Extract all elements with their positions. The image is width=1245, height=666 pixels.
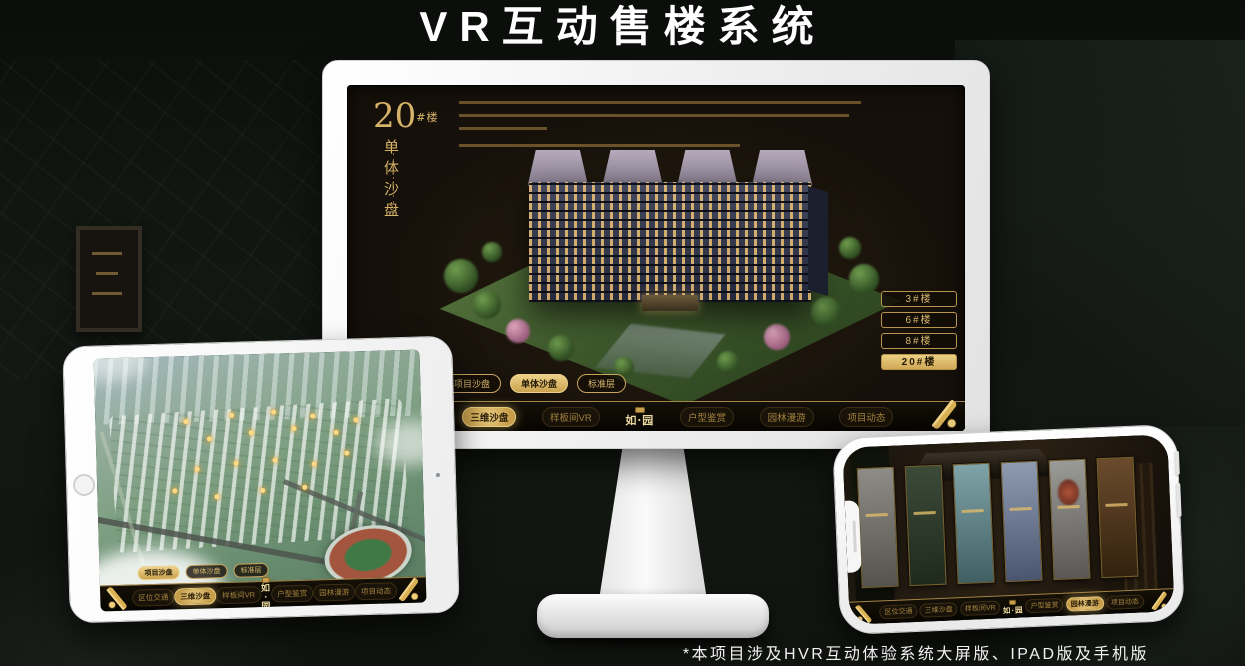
- building-marker[interactable]: [207, 436, 212, 441]
- tree-graphic: [811, 297, 841, 327]
- gallery-panel[interactable]: [904, 465, 946, 586]
- phone-frame: 区位交通 三维沙盘 样板间VR 如·园 户型鉴赏 园林漫游 项目动态: [832, 424, 1185, 635]
- brand-logo: 如·园: [625, 407, 654, 427]
- scroll-icon[interactable]: [1150, 591, 1170, 611]
- gallery-panels: [856, 457, 1138, 588]
- subtitle-decoration: [393, 141, 394, 215]
- gallery-panel[interactable]: [1048, 459, 1090, 580]
- nav-item-garden-tour[interactable]: 园林漫游: [313, 583, 355, 601]
- phone-device: 区位交通 三维沙盘 样板间VR 如·园 户型鉴赏 园林漫游 项目动态: [832, 424, 1185, 635]
- nav-item-showroom-vr[interactable]: 样板间VR: [542, 407, 600, 427]
- scroll-icon[interactable]: [930, 400, 960, 430]
- floor-button-3[interactable]: 3#楼: [881, 291, 957, 307]
- nav-item-location[interactable]: 区位交通: [132, 588, 174, 606]
- background-plaque: [76, 226, 142, 332]
- nav-item-3d-sandbox[interactable]: 三维沙盘: [919, 602, 958, 618]
- building-number-suffix: #楼: [416, 111, 438, 124]
- building-marker[interactable]: [344, 450, 349, 455]
- brand-logo-text: 如·园: [261, 584, 272, 611]
- scroll-icon[interactable]: [105, 586, 130, 611]
- building-marker[interactable]: [271, 409, 276, 414]
- nav-item-showroom-vr[interactable]: 样板间VR: [960, 600, 1001, 616]
- camera-icon: [436, 473, 440, 477]
- scroll-icon[interactable]: [397, 578, 422, 603]
- brand-logo: 如·园: [261, 577, 272, 611]
- tree-graphic: [764, 324, 790, 350]
- brand-seal-icon: [635, 407, 645, 414]
- monitor-stand-base: [537, 594, 769, 638]
- brand-logo-text: 如·园: [1003, 606, 1024, 614]
- building-label: 20#楼 单体沙盘: [373, 99, 438, 231]
- gallery-panel[interactable]: [856, 467, 898, 588]
- nav-item-floorplans[interactable]: 户型鉴赏: [680, 407, 734, 427]
- scroll-icon[interactable]: [854, 604, 874, 624]
- tree-graphic: [849, 264, 879, 294]
- monitor-stand-neck: [578, 444, 728, 600]
- tablet-screen: 项目沙盘 单体沙盘 标准层 区位交通 三维沙盘 样板间VR 如·园 户型鉴赏 园…: [94, 350, 427, 612]
- building-number: 20: [373, 96, 416, 136]
- page-title: VR互动售楼系统: [0, 0, 1245, 54]
- nav-item-garden-tour[interactable]: 园林漫游: [1065, 596, 1104, 612]
- tab-single-sandbox[interactable]: 单体沙盘: [510, 374, 568, 393]
- tablet-device: 项目沙盘 单体沙盘 标准层 区位交通 三维沙盘 样板间VR 如·园 户型鉴赏 园…: [62, 336, 460, 624]
- nav-item-showroom-vr[interactable]: 样板间VR: [216, 586, 261, 604]
- footnote: *本项目涉及HVR互动体验系统大屏版、IPAD版及手机版: [683, 640, 1149, 664]
- tree-graphic: [548, 335, 574, 361]
- nav-item-3d-sandbox[interactable]: 三维沙盘: [462, 407, 516, 427]
- background-photo-right: [955, 40, 1245, 470]
- nav-item-3d-sandbox[interactable]: 三维沙盘: [174, 587, 216, 605]
- view-tab-group: 项目沙盘 单体沙盘 标准层: [443, 374, 626, 393]
- building-side: [808, 187, 828, 296]
- building-render: [435, 139, 905, 411]
- tree-graphic: [506, 319, 530, 343]
- tree-graphic: [473, 291, 501, 319]
- brand-logo: 如·园: [1002, 599, 1023, 614]
- building-marker[interactable]: [272, 457, 277, 462]
- speaker-icon: [852, 520, 856, 552]
- nav-item-floorplans[interactable]: 户型鉴赏: [1025, 598, 1064, 614]
- nav-item-garden-tour[interactable]: 园林漫游: [760, 407, 814, 427]
- building-marker[interactable]: [229, 413, 234, 418]
- tablet-frame: 项目沙盘 单体沙盘 标准层 区位交通 三维沙盘 样板间VR 如·园 户型鉴赏 园…: [62, 336, 460, 624]
- floor-button-20[interactable]: 20#楼: [881, 354, 957, 370]
- phone-notch: [845, 500, 862, 573]
- tree-graphic: [482, 242, 502, 262]
- gallery-panel[interactable]: [952, 463, 994, 584]
- floor-button-group: 3#楼 6#楼 8#楼 20#楼: [881, 291, 957, 370]
- gallery-panel[interactable]: [1000, 461, 1042, 582]
- tree-graphic: [717, 351, 739, 373]
- gallery-panel[interactable]: [1096, 457, 1138, 578]
- nav-item-location[interactable]: 区位交通: [879, 604, 918, 620]
- building-facade: [529, 182, 811, 302]
- home-button[interactable]: [73, 473, 96, 496]
- building-entrance: [642, 295, 698, 312]
- tree-graphic: [839, 237, 861, 259]
- tab-standard-floor[interactable]: 标准层: [233, 563, 268, 578]
- building-3d-model[interactable]: [529, 150, 811, 302]
- building-marker[interactable]: [353, 417, 358, 422]
- building-marker[interactable]: [172, 488, 177, 493]
- brand-seal-icon: [1009, 599, 1016, 604]
- nav-item-project-news[interactable]: 项目动态: [1106, 594, 1145, 610]
- building-marker[interactable]: [312, 461, 317, 466]
- nav-item-floorplans[interactable]: 户型鉴赏: [271, 585, 313, 603]
- background-map-texture: [0, 60, 350, 380]
- nav-item-project-news[interactable]: 项目动态: [839, 407, 893, 427]
- building-marker[interactable]: [310, 413, 315, 418]
- building-marker[interactable]: [303, 484, 308, 489]
- tab-standard-floor[interactable]: 标准层: [577, 374, 626, 393]
- brand-seal-icon: [262, 577, 270, 583]
- floor-button-6[interactable]: 6#楼: [881, 312, 957, 328]
- building-subtitle: 单体沙盘: [381, 139, 402, 231]
- floor-button-8[interactable]: 8#楼: [881, 333, 957, 349]
- brand-logo-text: 如·园: [625, 415, 654, 426]
- tab-single-sandbox[interactable]: 单体沙盘: [185, 564, 227, 579]
- tree-graphic: [444, 259, 478, 293]
- phone-screen: 区位交通 三维沙盘 样板间VR 如·园 户型鉴赏 园林漫游 项目动态: [842, 434, 1174, 624]
- promo-banner: VR互动售楼系统 20#楼 单体沙盘: [0, 0, 1245, 666]
- tab-project-sandbox[interactable]: 项目沙盘: [137, 565, 179, 580]
- nav-item-project-news[interactable]: 项目动态: [355, 582, 397, 600]
